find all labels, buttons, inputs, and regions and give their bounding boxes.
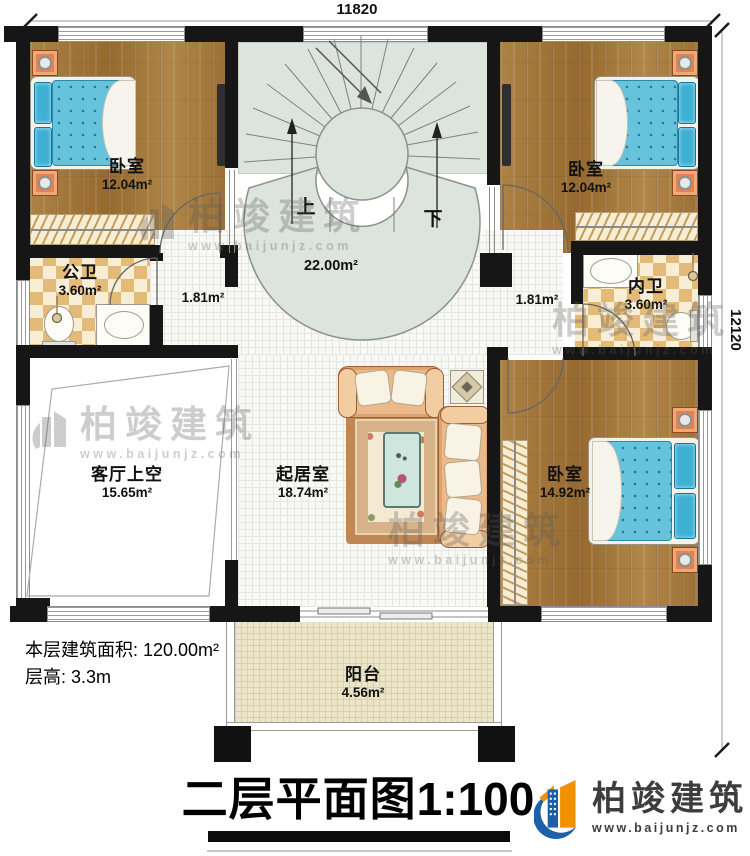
sink-icon: [104, 311, 144, 339]
wall-segment: [487, 360, 500, 607]
wall-segment: [30, 245, 160, 258]
floor-area-text: 本层建筑面积: 120.00m²: [25, 637, 219, 664]
wall-segment: [698, 355, 712, 410]
window-icon: [16, 405, 30, 600]
wall-segment: [16, 26, 30, 280]
sliding-door-icon: [300, 608, 488, 619]
corner-table-icon: [450, 370, 484, 404]
window-icon: [16, 280, 30, 350]
wall-segment: [225, 42, 238, 168]
balcony-railing: [226, 722, 502, 731]
room-name: 卧室: [102, 157, 152, 177]
balcony-railing: [226, 620, 235, 732]
window-icon: [58, 26, 185, 42]
drawing-scale: 1:100: [417, 773, 535, 825]
toilet-tank: [690, 310, 698, 342]
window-icon: [47, 606, 210, 622]
wall-segment: [480, 253, 512, 287]
room-area: 18.74m²: [276, 485, 330, 501]
bed-pillow: [678, 82, 696, 124]
wall-segment: [16, 358, 30, 405]
stairs-down-label: 下: [423, 204, 442, 231]
window-icon: [698, 410, 712, 565]
wardrobe-icon: [30, 214, 155, 245]
bed-pillow: [674, 493, 696, 539]
drawing-title: 二层平面图1:100: [182, 763, 535, 829]
room-area: 3.60m²: [625, 297, 668, 313]
wall-segment: [571, 255, 583, 304]
wall-segment: [487, 42, 500, 185]
toilet-icon: [44, 306, 74, 342]
brand-logo-icon: [534, 775, 582, 841]
sofa-cushion: [354, 369, 392, 407]
nightstand-icon: [672, 407, 698, 433]
window-icon: [698, 295, 712, 355]
nightstand-icon: [672, 50, 698, 76]
window-icon: [303, 26, 428, 42]
stair-area-label: 22.00m²: [304, 258, 358, 275]
wall-segment: [428, 26, 542, 42]
column-icon: [478, 726, 515, 762]
brand-url: www.baijunjz.com: [592, 821, 748, 835]
drawing-title-text: 二层平面图: [182, 773, 417, 825]
wall-segment: [667, 606, 712, 622]
tv-icon: [502, 84, 511, 166]
wall-segment: [10, 606, 47, 622]
floor-height-text: 层高: 3.3m: [25, 664, 219, 691]
wall-segment: [225, 560, 238, 607]
room-label-living-void: 客厅上空 15.65m²: [91, 465, 163, 502]
wall-segment: [487, 347, 508, 360]
bed-pillow: [34, 127, 52, 167]
room-name: 公卫: [59, 263, 102, 283]
hall-left-area-label: 1.81m²: [182, 290, 225, 306]
wall-segment: [210, 606, 300, 622]
room-name: 内卫: [625, 277, 668, 297]
wall-segment: [563, 347, 712, 360]
room-label-balcony: 阳台 4.56m²: [342, 665, 385, 702]
wall-segment: [4, 26, 58, 42]
floorplan-page: 卧室 12.04m² 卧室 12.04m² 卧室 14.92m² 公卫 3.60…: [0, 0, 750, 856]
sofa-cushion: [390, 369, 428, 407]
wall-segment: [185, 26, 303, 42]
room-area: 4.56m²: [342, 685, 385, 701]
bed-pillow: [674, 443, 696, 489]
bed-pillow: [34, 82, 52, 124]
hall-right-area-label: 1.81m²: [516, 292, 559, 308]
bed-blanket: [102, 80, 136, 166]
room-name: 起居室: [276, 465, 330, 485]
room-area: 1.81m²: [516, 292, 559, 308]
room-area: 14.92m²: [540, 485, 590, 501]
wall-segment: [488, 606, 541, 622]
stairwell-floor: [238, 42, 489, 174]
sofa-cushion: [443, 422, 482, 461]
room-area: 3.60m²: [59, 283, 102, 299]
balcony-railing: [493, 620, 502, 732]
bed-pillow: [678, 127, 696, 167]
wall-segment: [150, 305, 163, 350]
sofa-cushion: [443, 496, 483, 536]
room-label-private-bath: 内卫 3.60m²: [625, 277, 668, 314]
room-area: 12.04m²: [561, 180, 611, 196]
title-underline-thin: [207, 850, 512, 852]
wall-segment: [571, 241, 712, 255]
column-icon: [214, 726, 251, 762]
room-area: 1.81m²: [182, 290, 225, 306]
room-area: 22.00m²: [304, 258, 358, 275]
sofa-armrest: [440, 406, 490, 424]
wall-segment: [16, 345, 238, 358]
room-area: 15.65m²: [91, 485, 163, 501]
nightstand-icon: [32, 170, 58, 196]
nightstand-icon: [672, 170, 698, 196]
dimension-right: 12120: [728, 300, 744, 360]
room-label-living: 起居室 18.74m²: [276, 465, 330, 502]
room-name: 客厅上空: [91, 465, 163, 485]
wall-segment: [150, 253, 163, 261]
nightstand-icon: [672, 547, 698, 573]
window-icon: [541, 606, 667, 622]
wardrobe-icon: [502, 440, 528, 605]
brand-logo: 柏竣建筑 www.baijunjz.com: [534, 775, 748, 841]
brand-name: 柏竣建筑: [592, 781, 748, 818]
wall-segment: [220, 245, 238, 258]
room-label-public-bath: 公卫 3.60m²: [59, 263, 102, 300]
room-label-bedroom-top-right: 卧室 12.04m²: [561, 160, 611, 197]
coffee-table-icon: [383, 432, 421, 508]
stairs-up-label: 上: [296, 192, 315, 219]
room-name: 卧室: [561, 160, 611, 180]
nightstand-icon: [32, 50, 58, 76]
room-label-bedroom-bottom-right: 卧室 14.92m²: [540, 465, 590, 502]
sofa-cushion: [443, 459, 482, 498]
wall-segment: [225, 253, 238, 287]
room-name: 阳台: [342, 665, 385, 685]
floor-info: 本层建筑面积: 120.00m² 层高: 3.3m: [25, 637, 219, 691]
window-icon: [542, 26, 665, 42]
room-label-bedroom-top-left: 卧室 12.04m²: [102, 157, 152, 194]
wardrobe-icon: [575, 212, 698, 241]
room-name: 卧室: [540, 465, 590, 485]
room-area: 12.04m²: [102, 177, 152, 193]
dimension-top: 11820: [322, 1, 392, 18]
title-underline: [208, 831, 510, 842]
